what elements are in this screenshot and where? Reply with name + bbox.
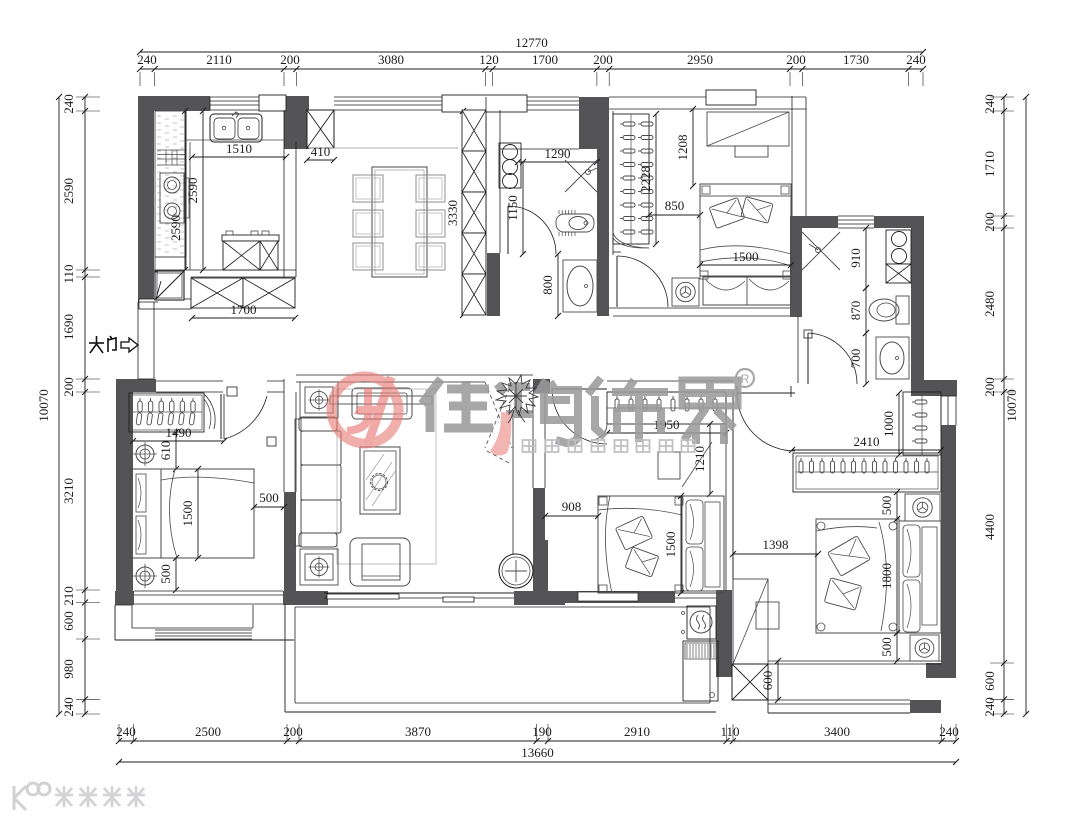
svg-text:2480: 2480 xyxy=(982,291,997,317)
svg-text:1690: 1690 xyxy=(61,314,76,340)
svg-text:110: 110 xyxy=(61,264,76,283)
svg-text:910: 910 xyxy=(848,248,863,268)
svg-text:908: 908 xyxy=(562,499,582,514)
svg-text:240: 240 xyxy=(61,697,76,717)
svg-text:13660: 13660 xyxy=(521,745,554,760)
svg-text:200: 200 xyxy=(280,52,300,67)
svg-text:1500: 1500 xyxy=(663,532,678,558)
svg-text:600: 600 xyxy=(760,671,775,691)
svg-text:12770: 12770 xyxy=(515,35,548,50)
svg-text:1500: 1500 xyxy=(180,501,195,527)
svg-text:2590: 2590 xyxy=(61,178,76,204)
svg-text:850: 850 xyxy=(665,198,685,213)
svg-text:2110: 2110 xyxy=(206,52,232,67)
svg-text:3080: 3080 xyxy=(378,52,404,67)
svg-text:120: 120 xyxy=(479,52,499,67)
svg-text:500: 500 xyxy=(879,496,894,516)
svg-text:870: 870 xyxy=(848,301,863,321)
svg-text:200: 200 xyxy=(982,377,997,397)
svg-text:200: 200 xyxy=(982,212,997,232)
svg-text:410: 410 xyxy=(311,144,331,159)
svg-text:1490: 1490 xyxy=(166,425,192,440)
svg-text:1700: 1700 xyxy=(532,52,558,67)
svg-text:200: 200 xyxy=(786,52,806,67)
svg-text:1800: 1800 xyxy=(879,563,894,589)
svg-text:2590: 2590 xyxy=(168,215,183,241)
svg-text:110: 110 xyxy=(720,724,739,739)
svg-text:500: 500 xyxy=(259,490,279,505)
svg-text:980: 980 xyxy=(61,659,76,679)
svg-text:600: 600 xyxy=(982,671,997,691)
svg-text:1290: 1290 xyxy=(545,146,571,161)
svg-text:2228: 2228 xyxy=(638,166,653,192)
svg-text:210: 210 xyxy=(61,586,76,606)
svg-text:610: 610 xyxy=(158,441,173,461)
svg-text:200: 200 xyxy=(283,724,303,739)
svg-text:3330: 3330 xyxy=(445,200,460,226)
svg-text:2910: 2910 xyxy=(624,724,650,739)
svg-text:2410: 2410 xyxy=(854,434,880,449)
svg-text:200: 200 xyxy=(61,377,76,397)
svg-text:1500: 1500 xyxy=(733,249,759,264)
svg-text:190: 190 xyxy=(532,724,552,739)
svg-text:1000: 1000 xyxy=(881,411,896,437)
svg-text:1398: 1398 xyxy=(763,537,789,552)
svg-text:1710: 1710 xyxy=(982,151,997,177)
svg-text:1730: 1730 xyxy=(843,52,869,67)
svg-text:200: 200 xyxy=(593,52,613,67)
svg-text:240: 240 xyxy=(137,52,157,67)
svg-text:2950: 2950 xyxy=(687,52,713,67)
svg-text:R: R xyxy=(741,372,750,386)
svg-text:10070: 10070 xyxy=(36,389,51,422)
svg-text:2590: 2590 xyxy=(185,178,200,204)
svg-text:4400: 4400 xyxy=(982,514,997,540)
svg-text:3210: 3210 xyxy=(61,478,76,504)
svg-text:3400: 3400 xyxy=(824,724,850,739)
svg-text:240: 240 xyxy=(906,52,926,67)
svg-text:1510: 1510 xyxy=(226,141,252,156)
svg-text:800: 800 xyxy=(540,275,555,295)
svg-text:1208: 1208 xyxy=(675,135,690,161)
svg-text:500: 500 xyxy=(158,564,173,584)
svg-text:1150: 1150 xyxy=(505,195,520,221)
svg-text:1700: 1700 xyxy=(231,302,257,317)
svg-text:3870: 3870 xyxy=(405,724,431,739)
svg-text:240: 240 xyxy=(61,94,76,114)
svg-text:2500: 2500 xyxy=(195,724,221,739)
svg-text:10070: 10070 xyxy=(1004,389,1019,422)
svg-text:500: 500 xyxy=(879,637,894,657)
svg-text:600: 600 xyxy=(61,611,76,631)
